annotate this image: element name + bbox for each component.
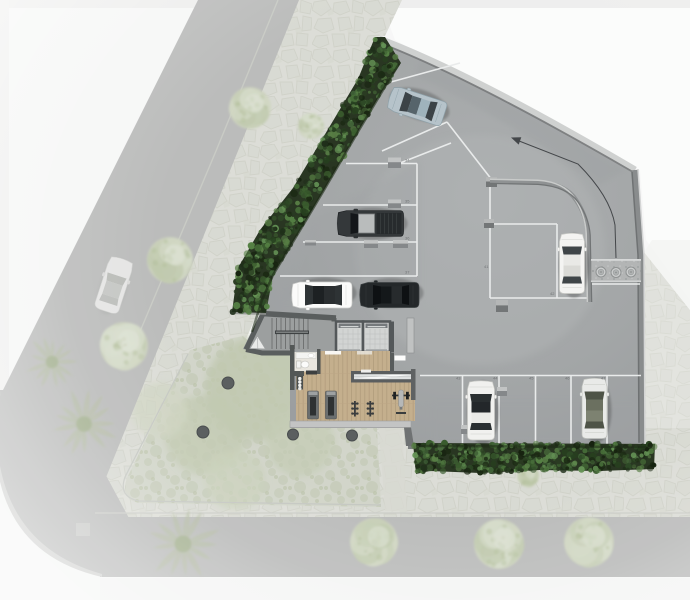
svg-text:45: 45 (529, 376, 534, 381)
svg-text:36: 36 (405, 236, 410, 241)
svg-text:42: 42 (550, 291, 555, 296)
svg-text:35: 35 (405, 199, 410, 204)
svg-text:46: 46 (565, 376, 570, 381)
svg-text:41: 41 (484, 264, 489, 269)
svg-text:47: 47 (601, 376, 606, 381)
svg-text:34: 34 (405, 158, 410, 163)
svg-text:44: 44 (493, 376, 498, 381)
svg-text:37: 37 (405, 270, 410, 275)
svg-text:43: 43 (456, 376, 461, 381)
